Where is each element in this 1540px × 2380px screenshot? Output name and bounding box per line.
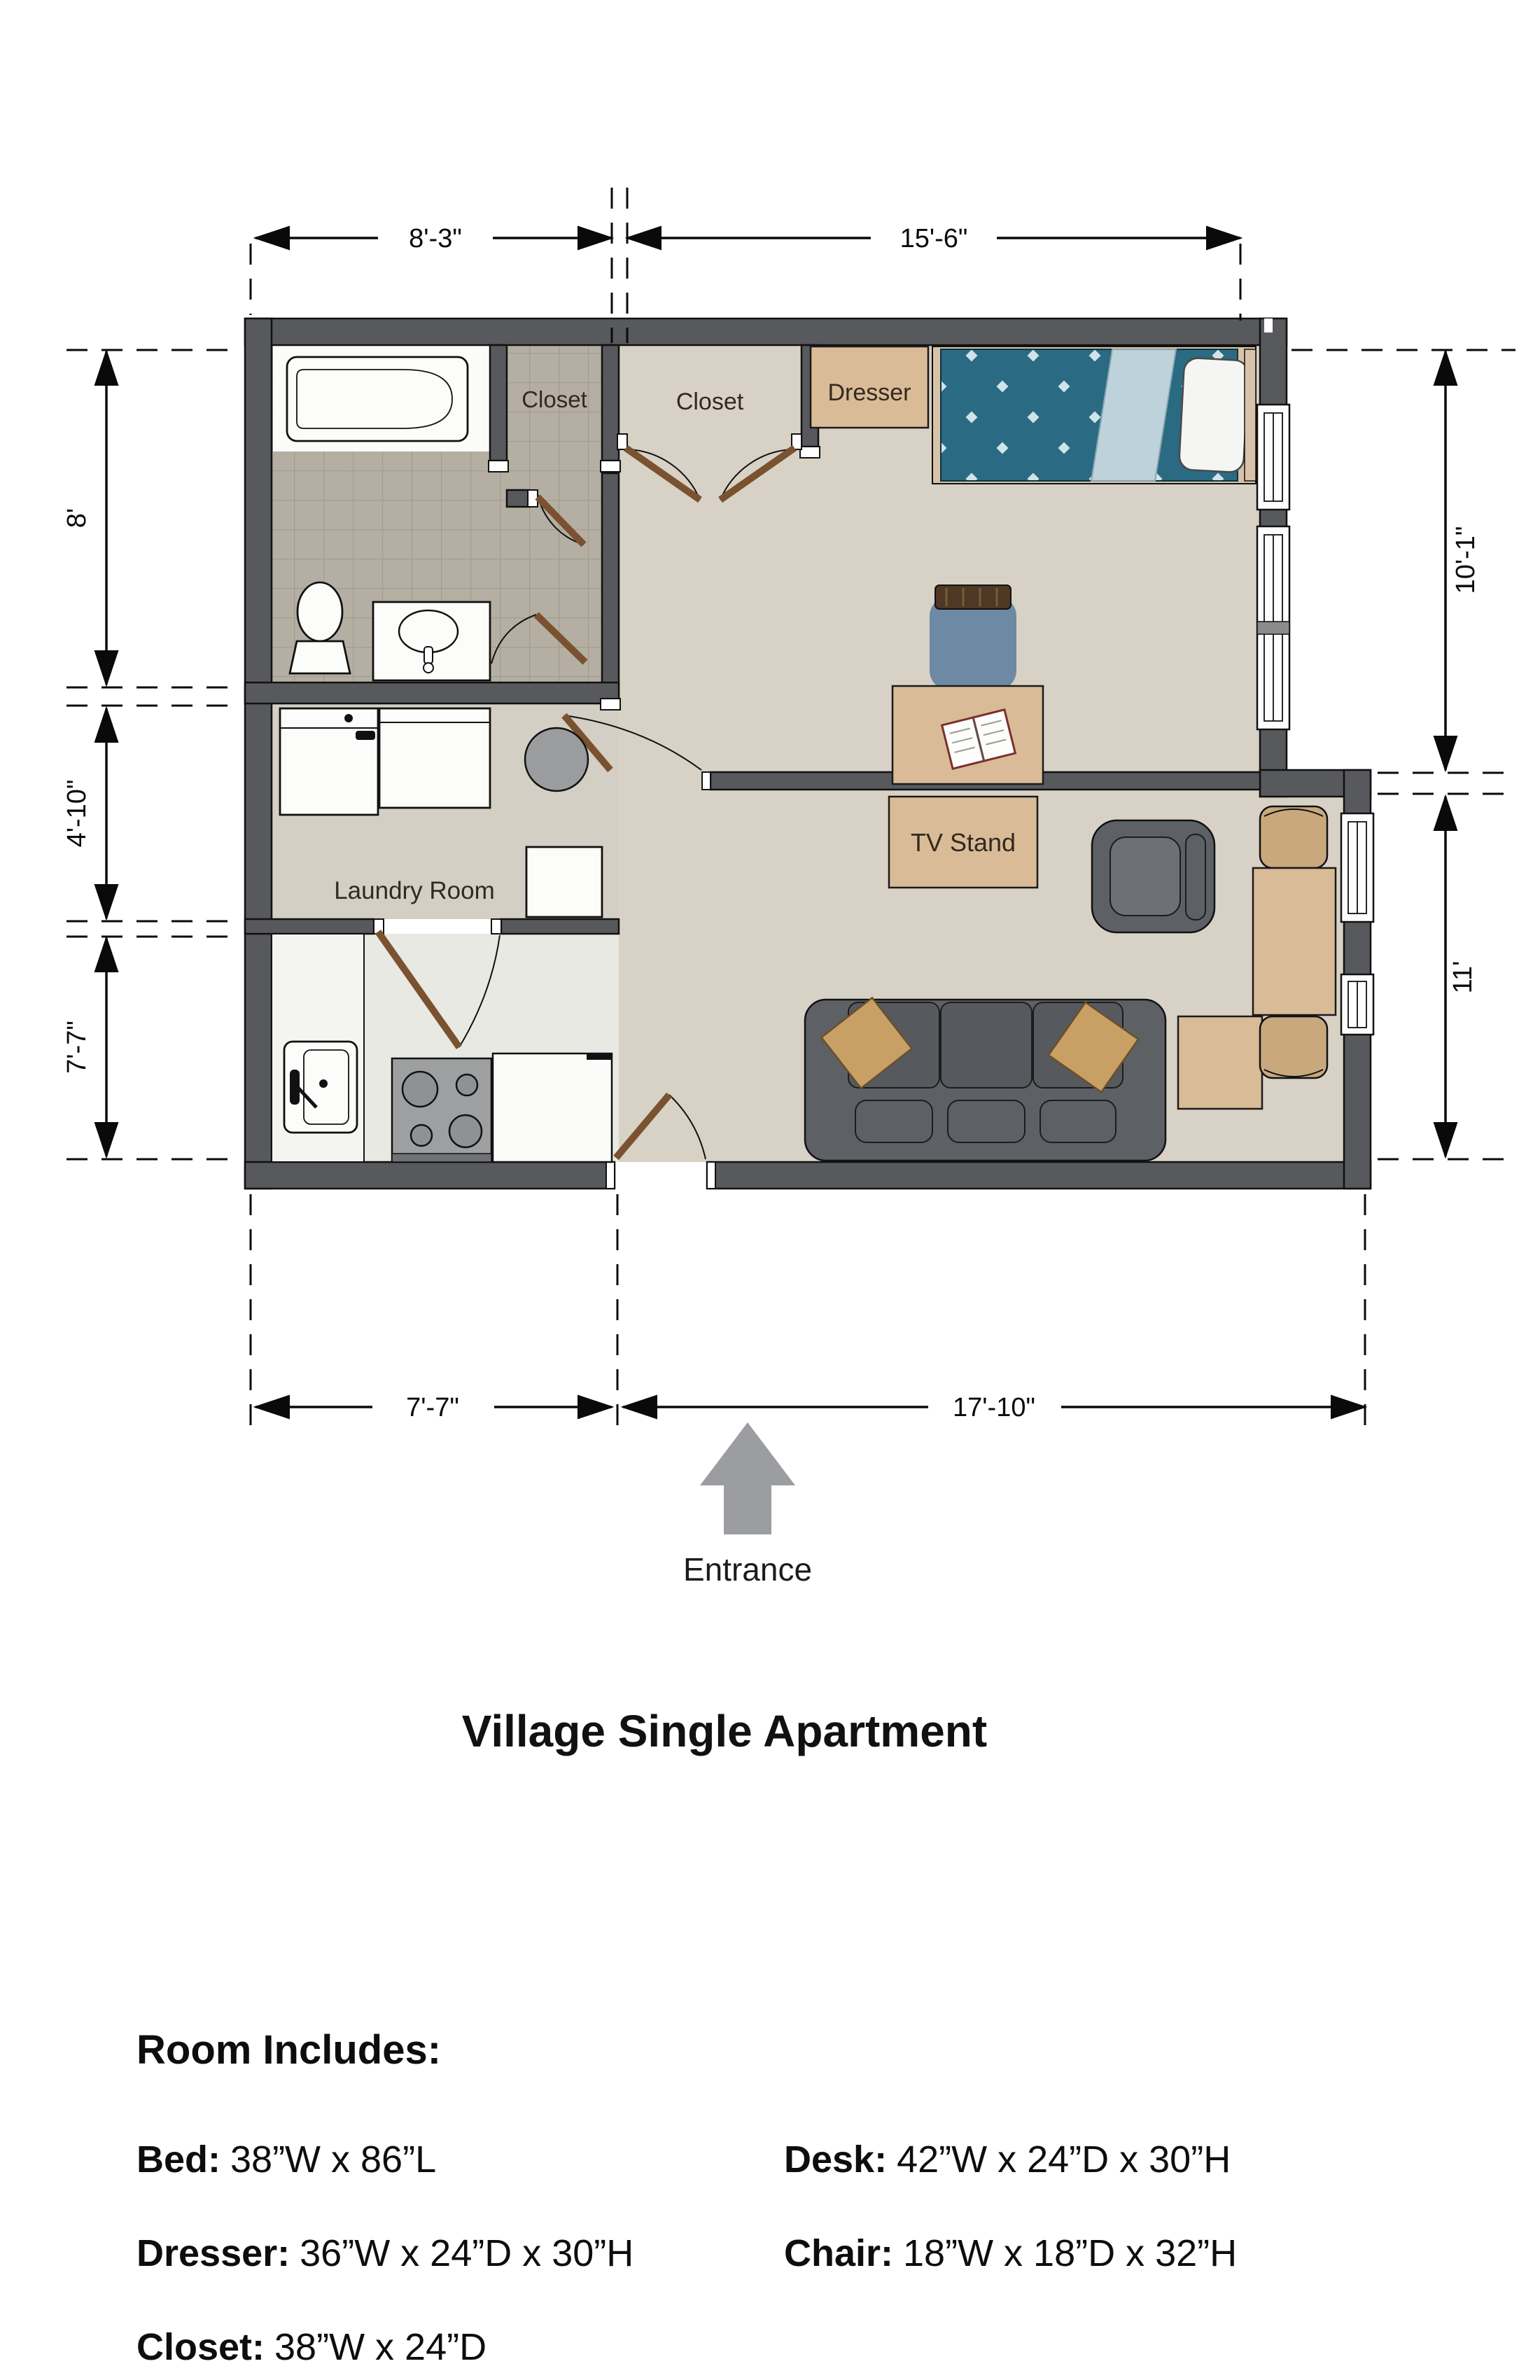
- jamb: [601, 461, 620, 472]
- entrance: Entrance: [683, 1422, 812, 1588]
- jamb: [491, 919, 501, 934]
- bottom-wall-left: [245, 1162, 615, 1189]
- side-table: [1178, 1016, 1262, 1109]
- jamb: [601, 699, 620, 710]
- kitchen-sink: [284, 1042, 357, 1133]
- hall-wall: [602, 473, 619, 699]
- bedroom-window-upper: [1257, 405, 1289, 510]
- closet2-label: Closet: [676, 388, 744, 415]
- jamb: [707, 1162, 715, 1189]
- include-label: Dresser:: [136, 2232, 290, 2274]
- dim-left-bath: 8': [62, 508, 92, 528]
- bed-pillow: [1179, 358, 1249, 473]
- include-item-closet: Closet:38”W x 24”D: [136, 2325, 784, 2380]
- include-label: Desk:: [784, 2138, 887, 2180]
- dim-right-bedroom: 10'-1": [1451, 526, 1480, 594]
- dim-left-kitchen: 7'-7": [62, 1021, 92, 1074]
- closet-divider-wall: [602, 345, 619, 461]
- page-title: Village Single Apartment: [245, 1705, 1204, 1757]
- closet1-bottom-wall: [507, 490, 529, 507]
- sofa: [805, 997, 1165, 1161]
- dim-top-right: 15'-6": [900, 224, 968, 253]
- laundry-room-label: Laundry Room: [334, 877, 495, 904]
- dim-bottom-living: 17'-10": [953, 1393, 1035, 1422]
- armchair: [1092, 820, 1214, 932]
- top-wall-notch: [1264, 318, 1273, 332]
- bed-headboard: [1245, 349, 1256, 481]
- dresser-label: Dresser: [827, 379, 911, 406]
- include-label: Bed:: [136, 2138, 220, 2180]
- dining-chair-bottom: [1260, 1016, 1327, 1078]
- room-includes-heading: Room Includes:: [136, 2026, 1237, 2073]
- jamb: [528, 490, 538, 507]
- living-window-lower: [1341, 974, 1373, 1035]
- floor-plan-drawing: Dresser: [0, 0, 1540, 2380]
- bedroom-window-lower: [1257, 526, 1289, 729]
- dining-chair-top: [1260, 806, 1327, 868]
- jamb: [606, 1162, 615, 1189]
- living-window-upper: [1341, 813, 1373, 922]
- dim-left-laundry: 4'-10": [62, 780, 92, 848]
- entrance-label: Entrance: [683, 1551, 812, 1588]
- dim-bottom-kitchen: 7'-7": [406, 1393, 459, 1422]
- include-label: Closet:: [136, 2326, 265, 2368]
- bed: [932, 346, 1256, 484]
- include-value: 38”W x 24”D: [274, 2326, 486, 2368]
- include-value: 18”W x 18”D x 32”H: [903, 2232, 1237, 2274]
- include-value: 42”W x 24”D x 30”H: [897, 2138, 1231, 2180]
- include-label: Chair:: [784, 2232, 893, 2274]
- include-item-chair: Chair:18”W x 18”D x 32”H: [784, 2232, 1237, 2325]
- include-item-bed: Bed:38”W x 86”L: [136, 2138, 784, 2232]
- include-value: 38”W x 86”L: [230, 2138, 436, 2180]
- bathtub: [287, 357, 468, 441]
- include-value: 36”W x 24”D x 30”H: [300, 2232, 633, 2274]
- room-includes: Room Includes: Bed:38”W x 86”L Dresser:3…: [136, 2026, 1237, 2380]
- jamb: [617, 434, 627, 449]
- dresser: Dresser: [811, 346, 928, 428]
- include-item-dresser: Dresser:36”W x 24”D x 30”H: [136, 2232, 784, 2325]
- laundry-basket: [525, 728, 588, 791]
- bathroom-sink: [373, 602, 490, 680]
- desk-chair: [930, 585, 1016, 690]
- dim-right-living: 11': [1448, 961, 1478, 994]
- laundry-bottom-wall-right: [501, 919, 619, 934]
- tv-stand: TV Stand: [889, 797, 1037, 888]
- include-item-desk: Desk:42”W x 24”D x 30”H: [784, 2138, 1237, 2232]
- laundry-table: [526, 847, 602, 917]
- kitchen-counter-right: [493, 1053, 612, 1162]
- desk: [892, 686, 1043, 784]
- jamb: [800, 447, 820, 458]
- bathroom-closet-wall: [490, 345, 507, 461]
- entrance-arrow: [700, 1422, 795, 1534]
- tv-stand-label: TV Stand: [911, 828, 1016, 857]
- closet1-label: Closet: [521, 386, 587, 412]
- stove: [392, 1058, 491, 1162]
- left-wall: [245, 318, 272, 1189]
- dining-table: [1253, 868, 1336, 1015]
- dim-top-left: 8'-3": [409, 224, 462, 253]
- jamb: [702, 772, 710, 790]
- washer: [280, 708, 378, 815]
- bottom-wall-right: [707, 1162, 1371, 1189]
- laundry-bottom-wall-left: [245, 919, 374, 934]
- floor-plan-page: Dresser: [0, 0, 1540, 2380]
- jamb: [489, 461, 508, 472]
- bathroom-bottom-wall: [245, 682, 619, 703]
- dryer: [379, 708, 490, 808]
- top-wall: [245, 318, 1287, 345]
- dining-table-set: [1253, 806, 1336, 1078]
